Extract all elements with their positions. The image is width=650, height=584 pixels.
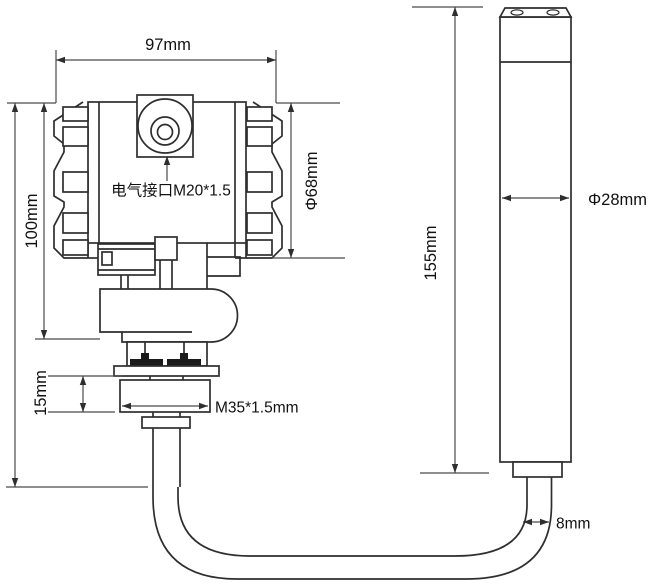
label-cable-diameter: 8mm — [556, 515, 590, 532]
probe-body — [500, 8, 571, 502]
transmitter-dimension-diagram: 97mm 100mm 15mm Φ68mm 155mm Φ28mm 8mm M3… — [0, 0, 650, 584]
technical-drawing-page: 97mm 100mm 15mm Φ68mm 155mm Φ28mm 8mm M3… — [0, 0, 650, 584]
mounting-flange — [114, 342, 219, 376]
structure-lines — [54, 8, 571, 579]
label-left-height: 100mm — [23, 193, 41, 248]
left-fin-block — [54, 102, 88, 258]
label-mount-height: 15mm — [32, 370, 50, 416]
label-probe-diameter: Φ28mm — [588, 191, 647, 209]
connecting-cable — [153, 487, 552, 579]
rounded-bracket — [100, 289, 238, 342]
electrical-port — [137, 95, 193, 157]
terminal-block — [98, 237, 240, 289]
label-electrical-interface: 电气接口M20*1.5 — [111, 181, 231, 199]
thread-block — [120, 376, 210, 428]
label-top-width: 97mm — [145, 36, 191, 54]
arrowheads — [12, 7, 569, 525]
right-fin-block — [246, 102, 282, 258]
dimension-15mm — [48, 376, 123, 412]
label-mount-thread: M35*1.5mm — [215, 399, 299, 416]
dimension-lines — [6, 7, 569, 522]
label-probe-length: 155mm — [422, 225, 440, 280]
label-housing-diameter: Φ68mm — [303, 151, 321, 210]
down-tube — [153, 428, 180, 487]
